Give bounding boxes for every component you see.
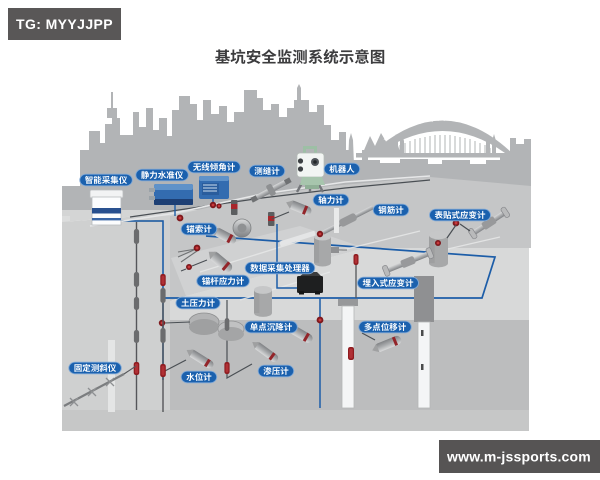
svg-text:www.m-jssports.com: www.m-jssports.com (446, 449, 591, 465)
svg-text:TG: MYYJJPP: TG: MYYJJPP (16, 16, 113, 32)
